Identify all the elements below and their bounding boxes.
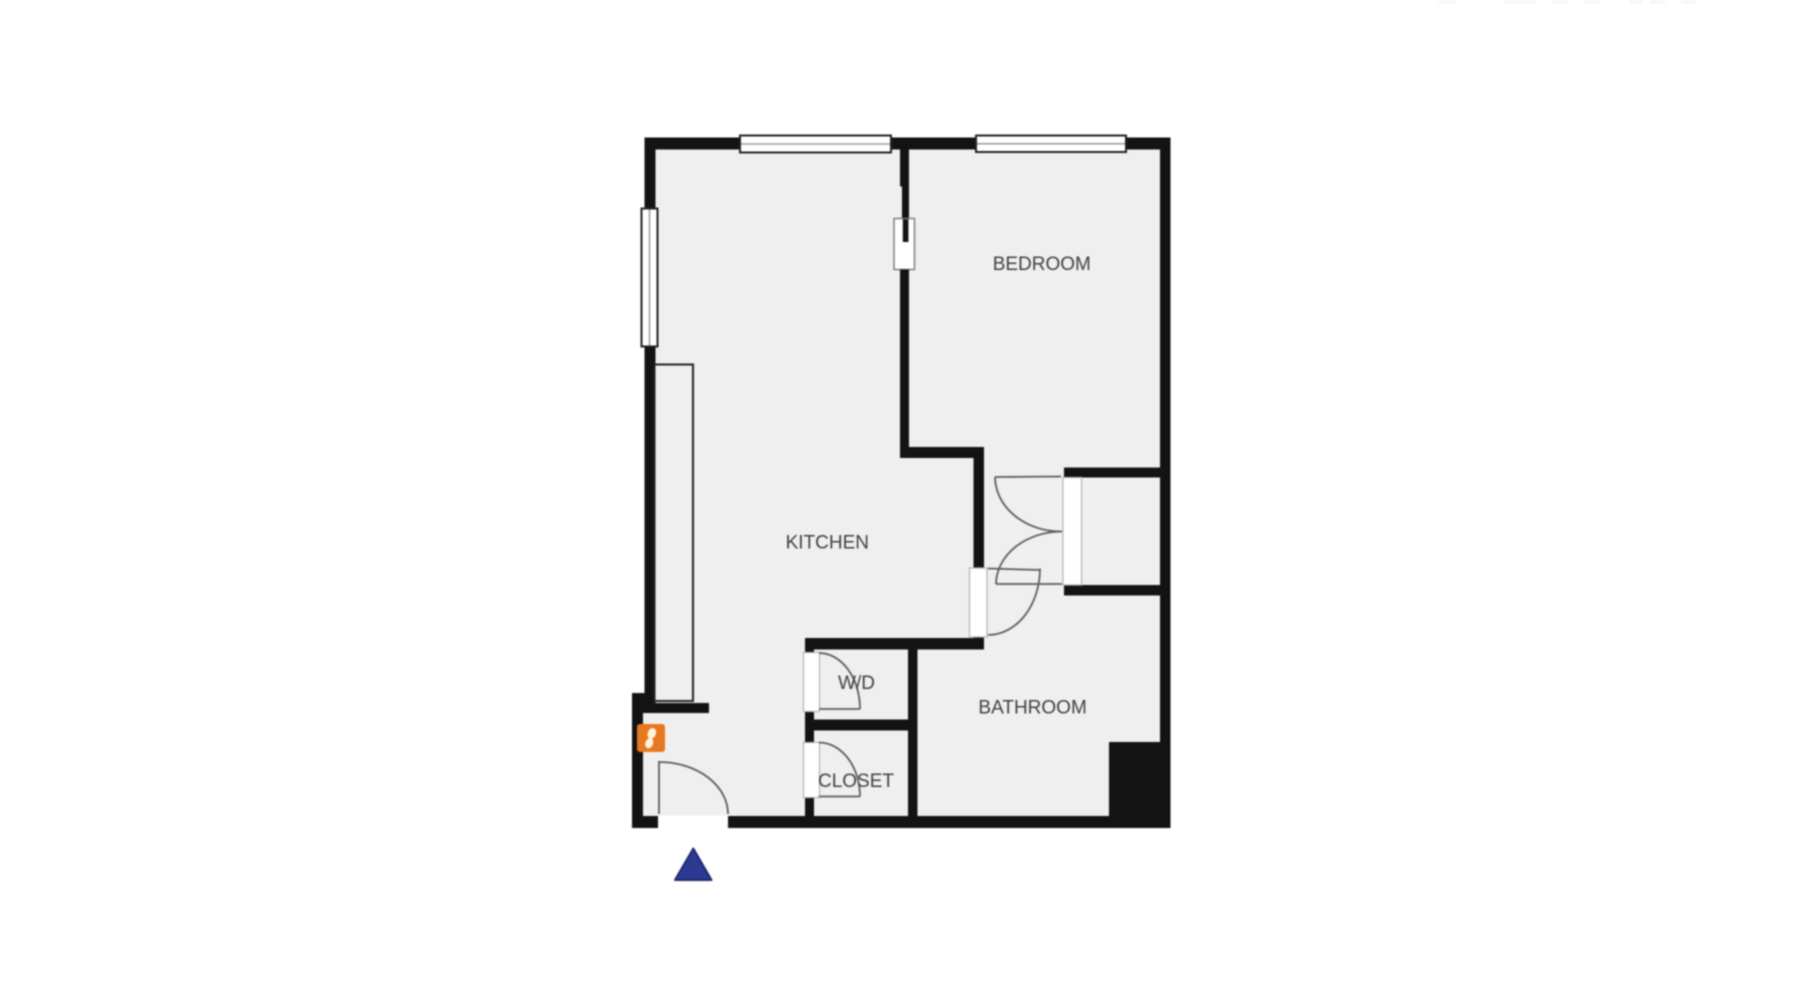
svg-text:BEDROOM: BEDROOM (993, 254, 1091, 275)
svg-text:CLOSET: CLOSET (818, 771, 894, 792)
svg-text:W/D: W/D (838, 673, 875, 694)
svg-text:BATHROOM: BATHROOM (978, 698, 1086, 719)
svg-text:KITCHEN: KITCHEN (786, 533, 869, 554)
